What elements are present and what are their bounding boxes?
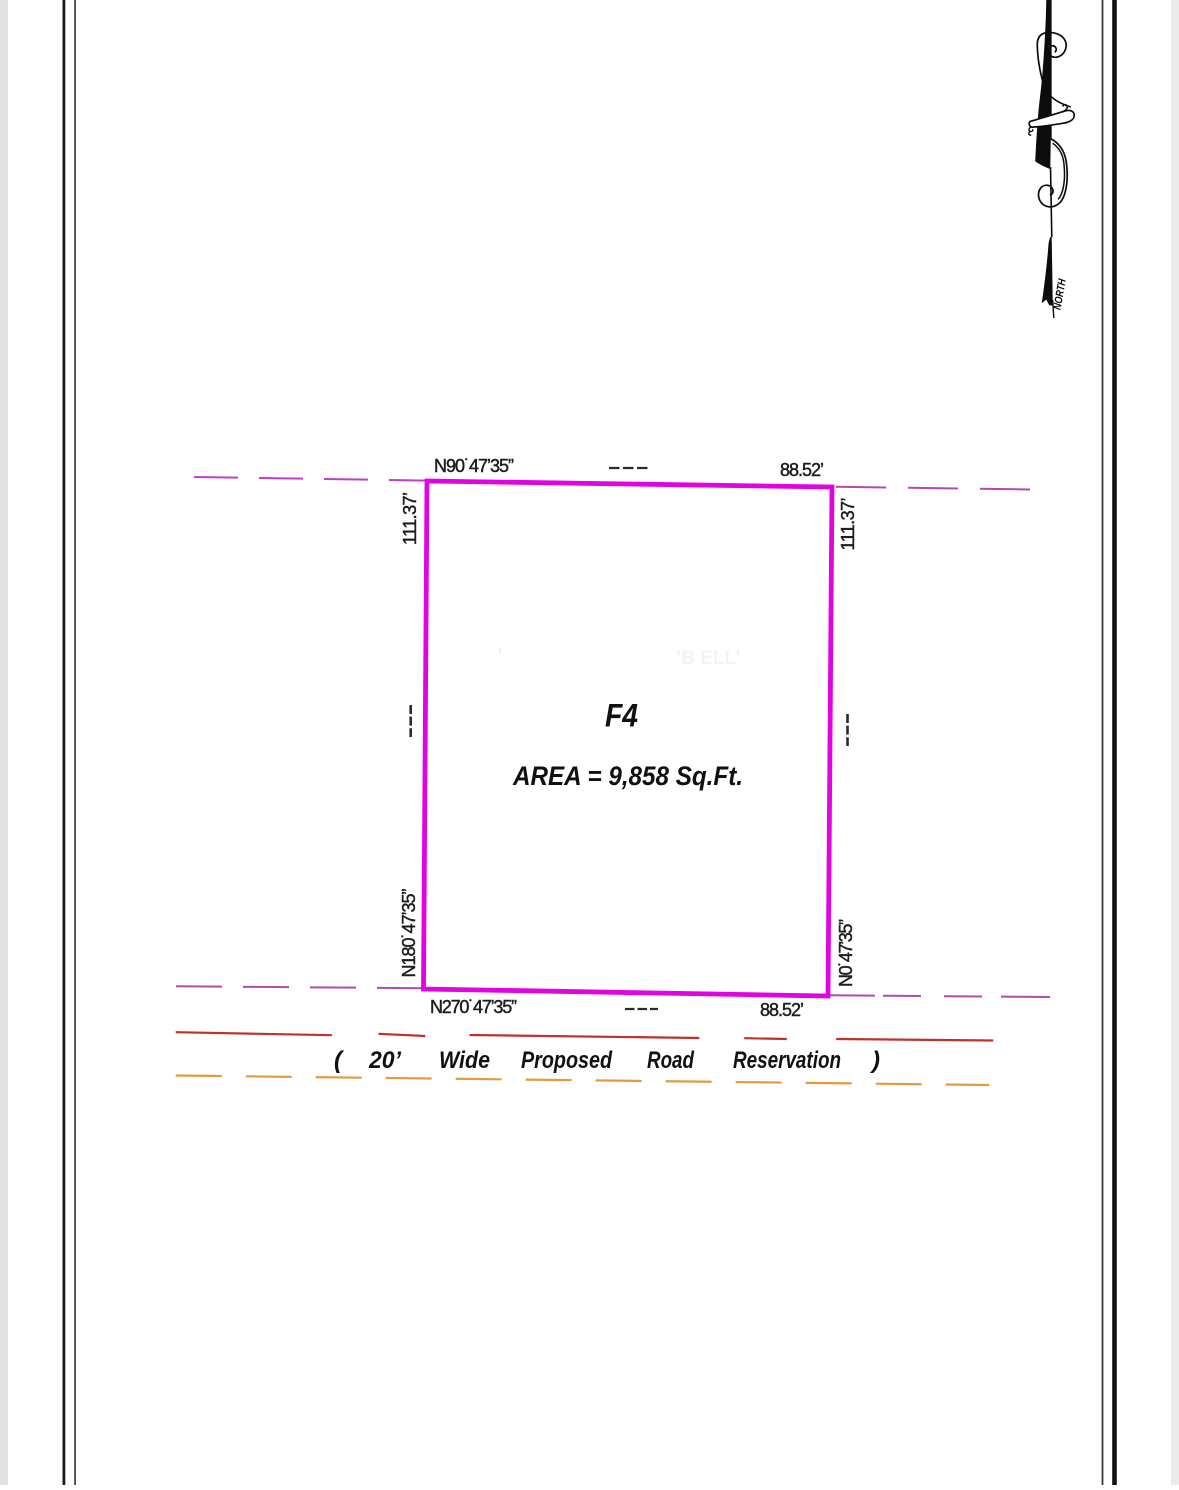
svg-text:’: ’ [497,646,502,667]
svg-text:F4: F4 [605,698,638,734]
svg-text:20’: 20’ [368,1047,401,1074]
svg-text:Proposed: Proposed [521,1047,613,1074]
svg-text:88.52’: 88.52’ [780,460,824,480]
svg-text:111.37’: 111.37’ [838,498,858,551]
svg-text:N270˙47’35”: N270˙47’35” [430,997,517,1017]
svg-text:AREA = 9,858 Sq.Ft.: AREA = 9,858 Sq.Ft. [512,761,743,791]
svg-text:111.37’: 111.37’ [400,492,420,545]
svg-text:Wide: Wide [439,1047,490,1074]
svg-text:Reservation: Reservation [733,1047,841,1074]
svg-text:N90˙47’35”: N90˙47’35” [434,456,514,476]
svg-text:’B ELL’: ’B ELL’ [676,648,740,669]
svg-text:88.52’: 88.52’ [760,1000,804,1020]
svg-text:Road: Road [647,1047,695,1074]
svg-text:N0˙47’35”: N0˙47’35” [836,919,856,987]
svg-text:N180˙47’35”: N180˙47’35” [399,889,419,978]
